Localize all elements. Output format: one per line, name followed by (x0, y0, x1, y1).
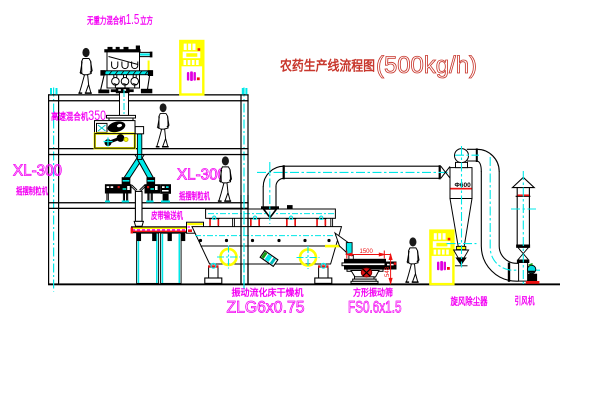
svg-text:摇摆制粒机: 摇摆制粒机 (16, 186, 48, 198)
svg-text:农药生产线流程图: 农药生产线流程图 (279, 58, 375, 74)
svg-text:XL-300: XL-300 (13, 163, 62, 180)
svg-text:1500: 1500 (360, 249, 374, 255)
svg-text:振动流化床干燥机: 振动流化床干燥机 (232, 287, 304, 299)
svg-text:ZLG6x0.75: ZLG6x0.75 (227, 299, 305, 317)
svg-text:皮带输送机: 皮带输送机 (150, 210, 183, 222)
svg-text:摇摆制粒机: 摇摆制粒机 (179, 191, 210, 203)
svg-text:(500kg/h): (500kg/h) (376, 52, 477, 79)
svg-text:引风机: 引风机 (515, 295, 535, 308)
svg-text:FS0.6x1.5: FS0.6x1.5 (348, 299, 402, 317)
svg-text:旋风除尘器: 旋风除尘器 (450, 295, 488, 308)
svg-text:Φ600: Φ600 (455, 182, 472, 189)
svg-text:方形振动筛: 方形振动筛 (353, 287, 393, 299)
svg-text:548: 548 (385, 266, 391, 277)
